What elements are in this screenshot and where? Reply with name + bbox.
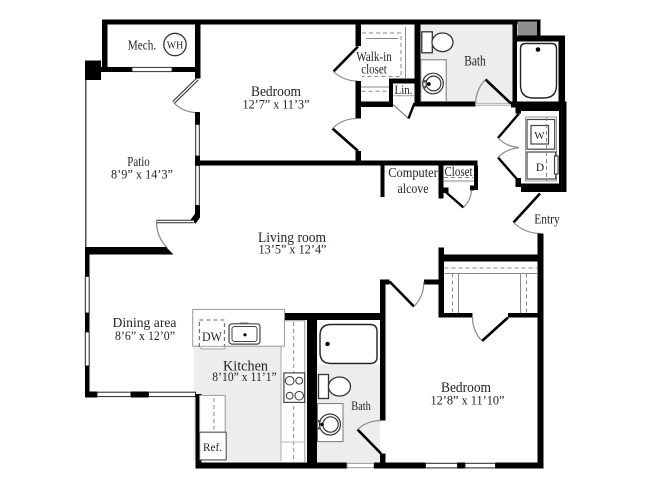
svg-text:Lin.: Lin. — [395, 83, 413, 97]
svg-text:13’5” x 12’4”: 13’5” x 12’4” — [259, 242, 327, 257]
svg-text:Entry: Entry — [534, 212, 560, 227]
svg-text:8’6” x 12’0”: 8’6” x 12’0” — [115, 328, 175, 343]
svg-text:D: D — [536, 162, 544, 174]
svg-text:W: W — [534, 130, 545, 142]
svg-text:Bath: Bath — [351, 398, 371, 413]
svg-text:8’10” x 11’1”: 8’10” x 11’1” — [212, 369, 277, 384]
svg-text:12’7” x 11’3”: 12’7” x 11’3” — [243, 97, 310, 112]
svg-text:Ref.: Ref. — [203, 440, 222, 454]
svg-text:Mech.: Mech. — [128, 38, 157, 53]
svg-text:8’9” x 14’3”: 8’9” x 14’3” — [111, 167, 173, 182]
svg-text:closet: closet — [361, 62, 387, 77]
svg-text:WH: WH — [167, 40, 184, 52]
svg-text:alcove: alcove — [398, 181, 429, 196]
svg-text:Bath: Bath — [464, 54, 486, 70]
svg-text:Closet: Closet — [445, 164, 473, 179]
svg-text:12’8” x 11’10”: 12’8” x 11’10” — [431, 393, 505, 408]
svg-text:Computer: Computer — [388, 165, 438, 180]
svg-text:DW: DW — [202, 329, 223, 344]
